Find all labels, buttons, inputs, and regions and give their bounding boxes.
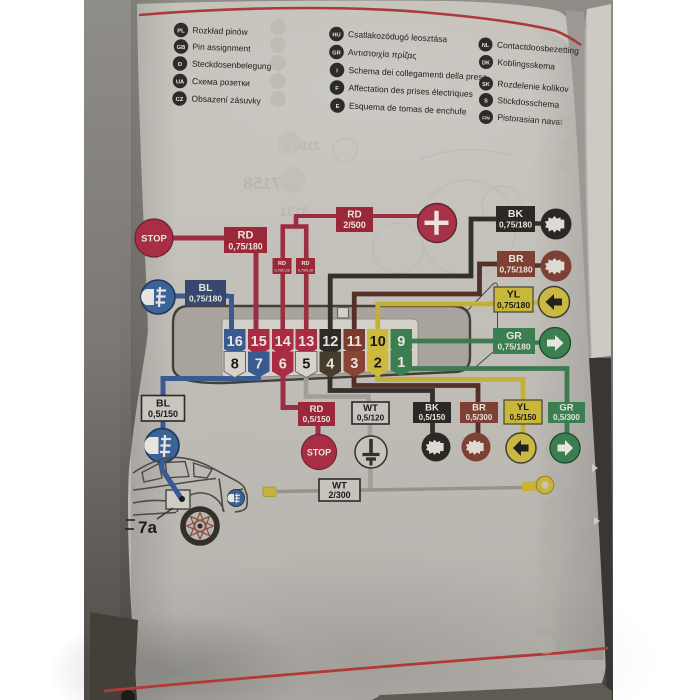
svg-text:NL: NL <box>482 43 490 49</box>
svg-text:4: 4 <box>326 357 334 373</box>
svg-text:0,75/180: 0,75/180 <box>497 300 530 310</box>
svg-text:Pin assignment: Pin assignment <box>192 42 251 54</box>
svg-text:0,5/150: 0,5/150 <box>510 413 537 422</box>
svg-text:14: 14 <box>275 334 291 350</box>
svg-text:BL: BL <box>199 282 214 294</box>
svg-text:2/500: 2/500 <box>343 220 366 230</box>
svg-text:0,75/180: 0,75/180 <box>189 294 222 304</box>
svg-text:RD: RD <box>347 210 361 221</box>
svg-text:1: 1 <box>397 355 405 371</box>
svg-text:F: F <box>335 86 339 92</box>
svg-text:DK: DK <box>482 60 490 66</box>
svg-text:PL: PL <box>177 28 185 34</box>
svg-text:13: 13 <box>298 334 314 350</box>
svg-text:0,75/0,18: 0,75/0,18 <box>298 269 313 273</box>
svg-text:FIN: FIN <box>482 115 490 120</box>
svg-text:0,75/180: 0,75/180 <box>499 265 532 275</box>
svg-text:8: 8 <box>231 357 239 373</box>
svg-text:16: 16 <box>227 334 243 350</box>
svg-text:UA: UA <box>176 79 185 85</box>
svg-text:GR: GR <box>332 50 342 56</box>
svg-text:0,5/150: 0,5/150 <box>303 414 331 424</box>
svg-text:S: S <box>484 98 488 104</box>
svg-text:STOP: STOP <box>141 234 167 245</box>
svg-text:BR: BR <box>508 253 524 265</box>
svg-text:GR: GR <box>506 330 522 342</box>
svg-text:BR: BR <box>472 403 486 414</box>
svg-text:0,75/0,18: 0,75/0,18 <box>275 269 290 273</box>
svg-text:E: E <box>336 104 340 110</box>
svg-text:6: 6 <box>279 357 287 373</box>
svg-text:9: 9 <box>397 334 405 350</box>
svg-text:BL: BL <box>156 398 171 410</box>
svg-text:2/300: 2/300 <box>328 490 350 500</box>
svg-text:7: 7 <box>255 357 263 373</box>
svg-text:RD: RD <box>278 261 286 267</box>
svg-text:Схема розетки: Схема розетки <box>192 76 250 88</box>
svg-text:7a: 7a <box>138 518 157 537</box>
svg-text:RD: RD <box>238 230 254 242</box>
svg-text:2: 2 <box>374 356 382 372</box>
svg-text:0,5/300: 0,5/300 <box>553 413 580 422</box>
svg-text:0,5/120: 0,5/120 <box>357 414 385 423</box>
svg-text:10: 10 <box>370 334 386 350</box>
svg-text:0,5/150: 0,5/150 <box>148 409 178 419</box>
svg-text:D: D <box>178 62 182 68</box>
svg-text:0,75/180: 0,75/180 <box>497 342 530 352</box>
svg-text:5: 5 <box>302 357 310 373</box>
svg-text:CZ: CZ <box>176 97 184 103</box>
svg-text:7158: 7158 <box>243 174 281 193</box>
svg-text:Rozkład pinów: Rozkład pinów <box>192 25 248 37</box>
svg-text:15: 15 <box>251 334 267 350</box>
svg-text:WT: WT <box>363 403 378 414</box>
svg-text:0,75/180: 0,75/180 <box>499 220 532 230</box>
svg-text:GB: GB <box>177 45 186 51</box>
svg-text:YL: YL <box>517 402 529 413</box>
svg-text:3: 3 <box>350 356 358 372</box>
svg-text:HU: HU <box>332 32 340 38</box>
svg-text:GR: GR <box>559 403 573 414</box>
svg-text:STOP: STOP <box>307 448 331 458</box>
svg-text:RD: RD <box>302 261 310 267</box>
svg-text:11: 11 <box>347 334 362 350</box>
svg-text:BK: BK <box>425 403 439 414</box>
svg-text:SK: SK <box>482 82 490 88</box>
svg-text:0,75/180: 0,75/180 <box>228 242 262 252</box>
svg-text:YL: YL <box>507 289 521 301</box>
svg-text:12: 12 <box>322 334 338 350</box>
svg-text:BK: BK <box>508 208 524 220</box>
svg-text:0,5/300: 0,5/300 <box>466 413 493 422</box>
svg-text:0,5/150: 0,5/150 <box>419 413 446 422</box>
